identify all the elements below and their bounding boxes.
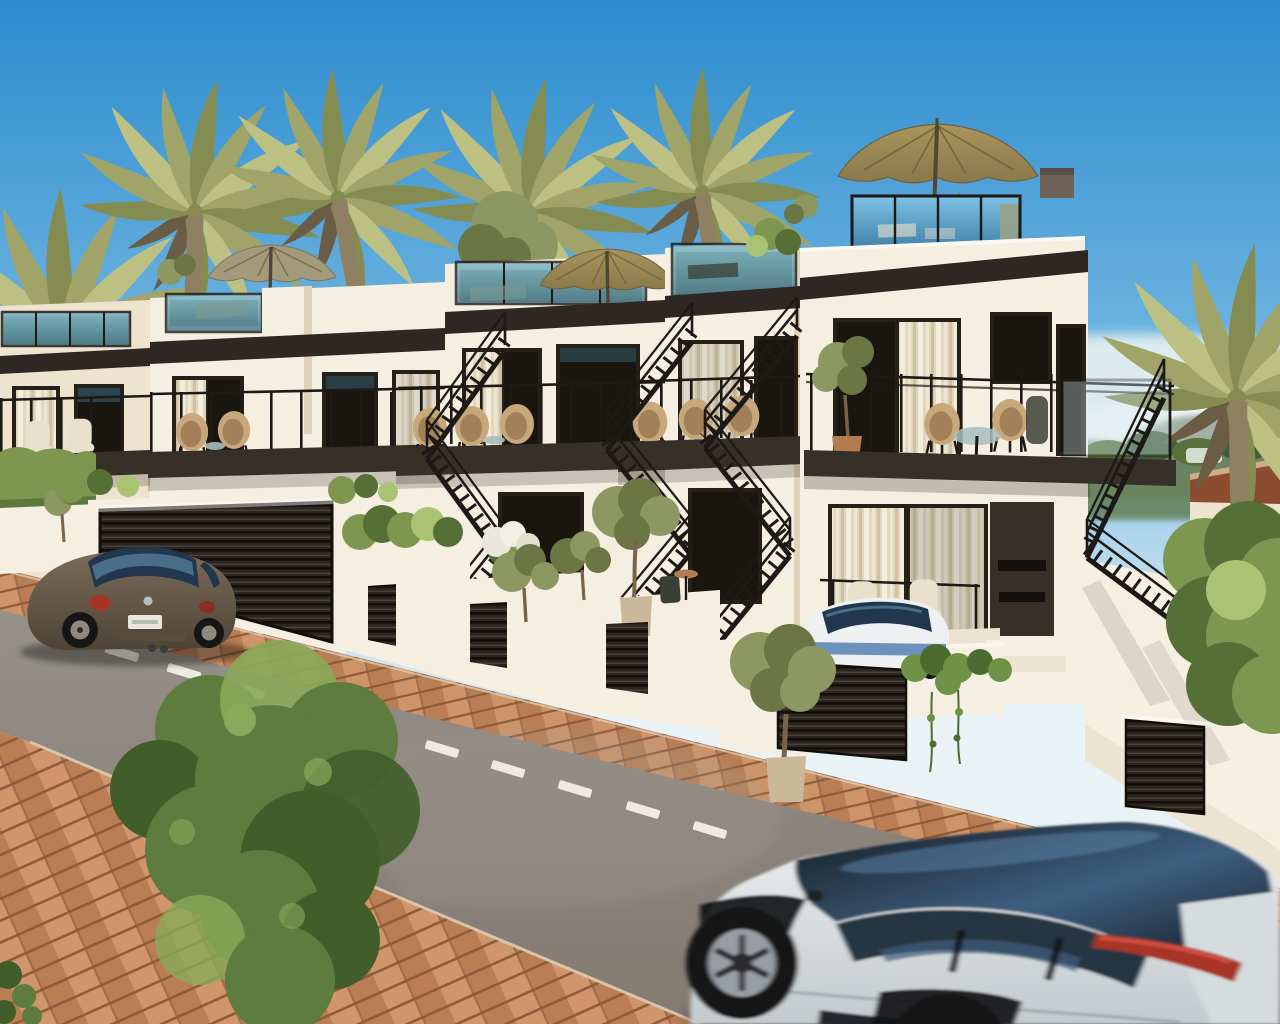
suv-mirror [805,890,823,902]
wall-vent [368,584,396,646]
balcony-side-chair [1026,396,1048,444]
scene-canvas [0,0,1280,1024]
basement-vent-door [1126,720,1204,814]
wall-vent [606,622,648,694]
architectural-render [0,0,1280,1024]
wall-vent [470,602,507,668]
roof-lounger [470,285,527,302]
entry-door [990,502,1054,636]
roof-recliner [688,263,739,280]
vw-badge [144,597,153,606]
roof-glass-railing [2,312,130,346]
beetle-taillight [89,595,111,611]
